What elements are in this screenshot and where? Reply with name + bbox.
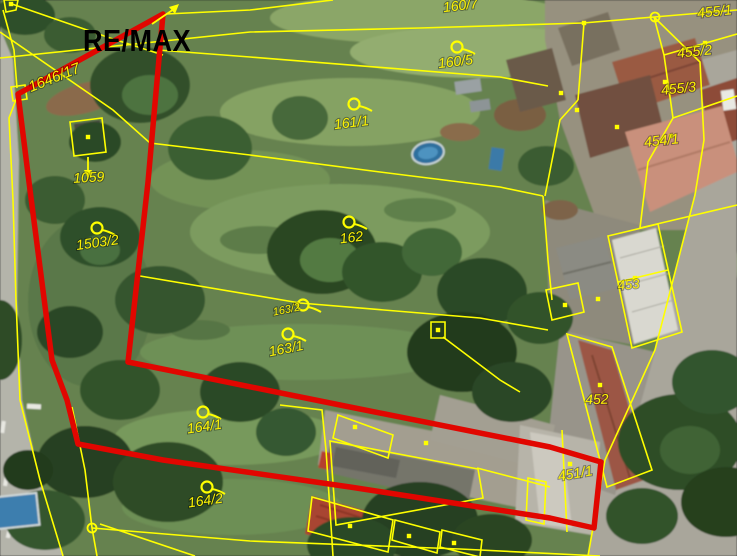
parcel-dot: [86, 135, 90, 139]
parcel-label: 453: [617, 276, 641, 293]
van: [721, 89, 737, 111]
parcel-dot: [436, 328, 440, 332]
parcel-dot: [424, 441, 428, 445]
parcel-dot: [596, 297, 600, 301]
parcel-dot: [559, 91, 563, 95]
parcel-dot: [353, 425, 357, 429]
parcel-dot: [598, 383, 602, 387]
parcel-dot: [9, 2, 13, 6]
remax-logo: RE/MAX: [83, 23, 191, 58]
parcel-dot: [615, 125, 619, 129]
parcel-label: 452: [585, 391, 609, 408]
parcel-label: 162: [339, 228, 364, 247]
parcel-dot: [563, 303, 567, 307]
parcel-dot: [575, 108, 579, 112]
parcel-dot: [452, 541, 456, 545]
parcel-label: 1059: [73, 168, 105, 186]
parcel-dot: [348, 524, 352, 528]
parcel-dot: [582, 21, 586, 25]
pool-corner: [0, 493, 40, 529]
parcel-dot: [407, 534, 411, 538]
map-viewport[interactable]: 1646/1710591503/2160/7160/5161/1162163/2…: [0, 0, 737, 556]
cadastral-map-svg[interactable]: 1646/1710591503/2160/7160/5161/1162163/2…: [0, 0, 737, 556]
